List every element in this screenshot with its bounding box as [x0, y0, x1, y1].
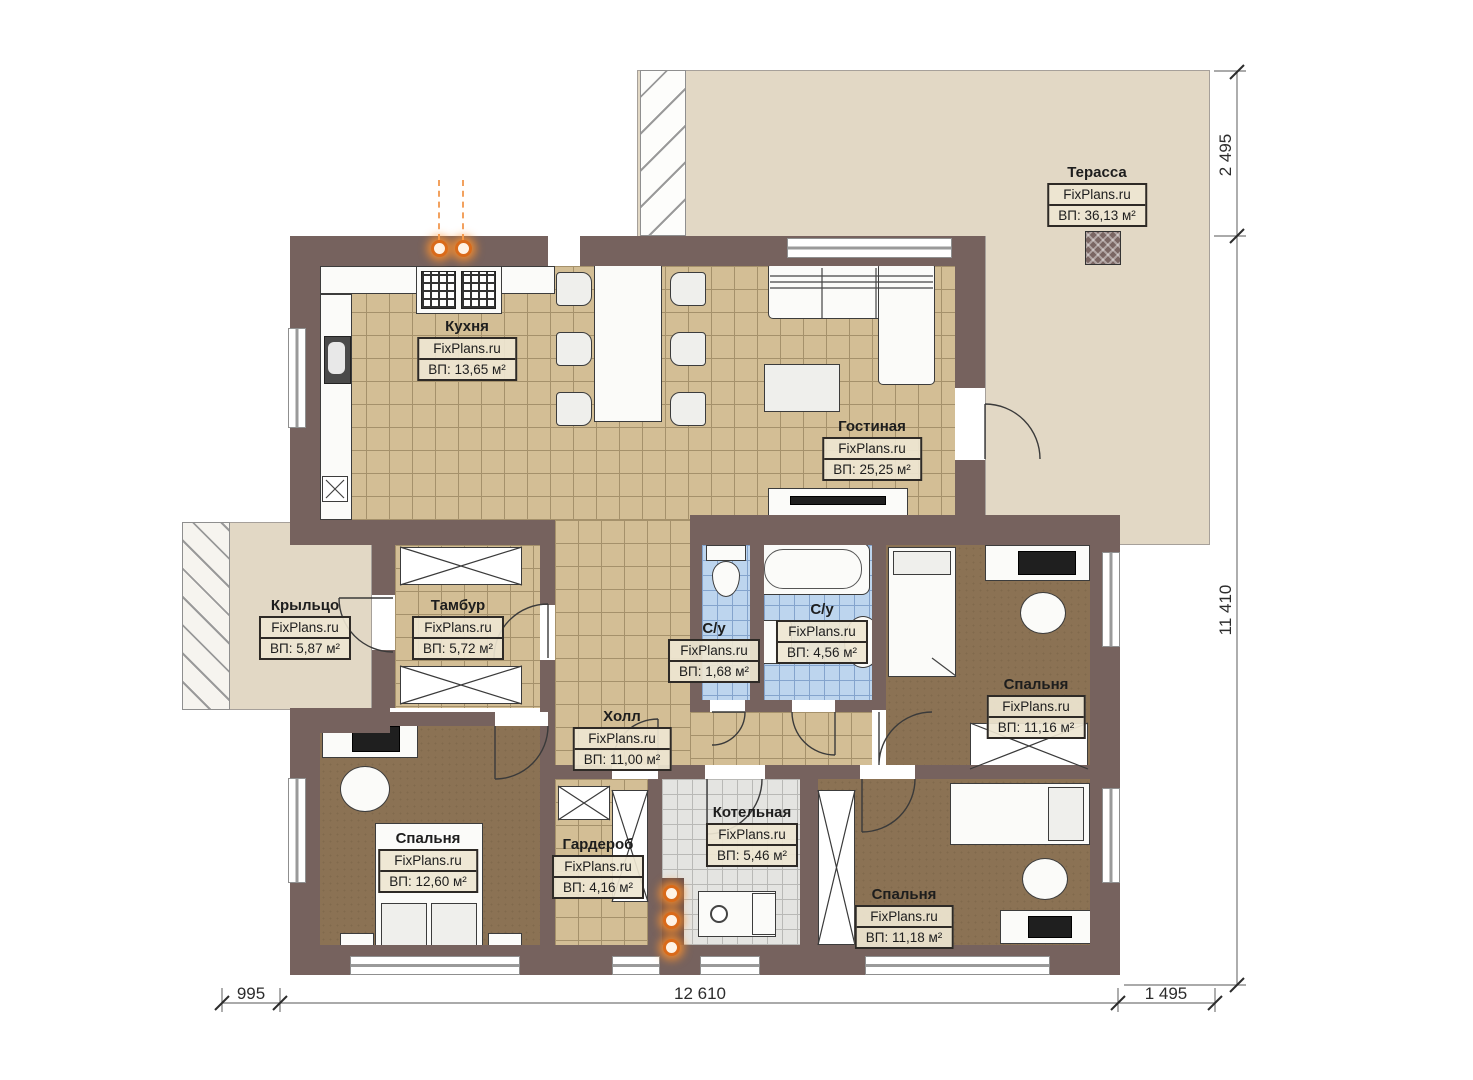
- vent-dashed-line: [438, 180, 440, 240]
- room-area-bedroom-right: ВП: 11,16 м²: [989, 718, 1084, 737]
- room-area-tambour: ВП: 5,72 м²: [414, 639, 502, 658]
- brand-watermark: FixPlans.ru: [554, 857, 642, 878]
- room-name-kitchen: Кухня: [417, 318, 517, 335]
- vent-dashed-line: [462, 180, 464, 240]
- vent-icon: [431, 240, 448, 257]
- brand-watermark: FixPlans.ru: [380, 851, 476, 872]
- brand-watermark: FixPlans.ru: [261, 618, 349, 639]
- room-label-terrace: Терасса FixPlans.ru ВП: 36,13 м²: [1047, 164, 1147, 227]
- room-label-bedroom-right: Спальня FixPlans.ru ВП: 11,16 м²: [987, 676, 1086, 739]
- brand-watermark: FixPlans.ru: [575, 729, 670, 750]
- room-label-tambour: Тамбур FixPlans.ru ВП: 5,72 м²: [412, 597, 504, 660]
- brand-watermark: FixPlans.ru: [989, 697, 1084, 718]
- room-name-wardrobe: Гардероб: [552, 836, 644, 853]
- room-area-living: ВП: 25,25 м²: [824, 460, 920, 479]
- room-name-boiler: Котельная: [706, 804, 798, 821]
- dimension-right: 11 410: [1216, 578, 1236, 642]
- brand-watermark: FixPlans.ru: [419, 339, 515, 360]
- dimension-top-right: 2 495: [1216, 125, 1236, 185]
- vent-icon: [455, 240, 472, 257]
- room-area-wardrobe: ВП: 4,16 м²: [554, 878, 642, 897]
- room-label-kitchen: Кухня FixPlans.ru ВП: 13,65 м²: [417, 318, 517, 381]
- room-name-bedroom-right: Спальня: [987, 676, 1086, 693]
- room-area-bedroom-left: ВП: 12,60 м²: [380, 872, 476, 891]
- brand-watermark: FixPlans.ru: [708, 825, 796, 846]
- room-label-living: Гостиная FixPlans.ru ВП: 25,25 м²: [822, 418, 922, 481]
- room-name-tambour: Тамбур: [412, 597, 504, 614]
- brand-watermark: FixPlans.ru: [857, 907, 952, 928]
- room-area-bedroom-bottom: ВП: 11,18 м²: [857, 928, 952, 947]
- room-area-wc-big: ВП: 4,56 м²: [778, 643, 866, 662]
- room-area-terrace: ВП: 36,13 м²: [1049, 206, 1145, 225]
- dimension-bottom-center: 12 610: [655, 984, 745, 1004]
- room-name-living: Гостиная: [822, 418, 922, 435]
- room-label-bedroom-bottom: Спальня FixPlans.ru ВП: 11,18 м²: [855, 886, 954, 949]
- room-label-porch: Крыльцо FixPlans.ru ВП: 5,87 м²: [259, 597, 351, 660]
- room-name-wc-small: С/у: [668, 620, 760, 637]
- brand-watermark: FixPlans.ru: [414, 618, 502, 639]
- brand-watermark: FixPlans.ru: [1049, 185, 1145, 206]
- room-name-bedroom-bottom: Спальня: [855, 886, 954, 903]
- vent-icon: [663, 939, 680, 956]
- room-area-boiler: ВП: 5,46 м²: [708, 846, 796, 865]
- room-name-wc-big: С/у: [776, 601, 868, 618]
- room-label-wc-big: С/у FixPlans.ru ВП: 4,56 м²: [776, 601, 868, 664]
- room-area-hall: ВП: 11,00 м²: [575, 750, 670, 769]
- room-label-wardrobe: Гардероб FixPlans.ru ВП: 4,16 м²: [552, 836, 644, 899]
- dimension-bottom-right: 1 495: [1130, 984, 1202, 1004]
- room-name-hall: Холл: [573, 708, 672, 725]
- room-label-bedroom-left: Спальня FixPlans.ru ВП: 12,60 м²: [378, 830, 478, 893]
- room-label-wc-small: С/у FixPlans.ru ВП: 1,68 м²: [668, 620, 760, 683]
- room-area-wc-small: ВП: 1,68 м²: [670, 662, 758, 681]
- brand-watermark: FixPlans.ru: [670, 641, 758, 662]
- floor-plan: Терасса FixPlans.ru ВП: 36,13 м² Кухня F…: [0, 0, 1473, 1080]
- plan-overlay: [0, 0, 1473, 1080]
- vent-icon: [663, 885, 680, 902]
- brand-watermark: FixPlans.ru: [778, 622, 866, 643]
- dimension-bottom-left: 995: [228, 984, 274, 1004]
- room-area-porch: ВП: 5,87 м²: [261, 639, 349, 658]
- room-area-kitchen: ВП: 13,65 м²: [419, 360, 515, 379]
- room-name-porch: Крыльцо: [259, 597, 351, 614]
- room-label-boiler: Котельная FixPlans.ru ВП: 5,46 м²: [706, 804, 798, 867]
- vent-icon: [663, 912, 680, 929]
- room-name-terrace: Терасса: [1047, 164, 1147, 181]
- room-label-hall: Холл FixPlans.ru ВП: 11,00 м²: [573, 708, 672, 771]
- room-name-bedroom-left: Спальня: [378, 830, 478, 847]
- brand-watermark: FixPlans.ru: [824, 439, 920, 460]
